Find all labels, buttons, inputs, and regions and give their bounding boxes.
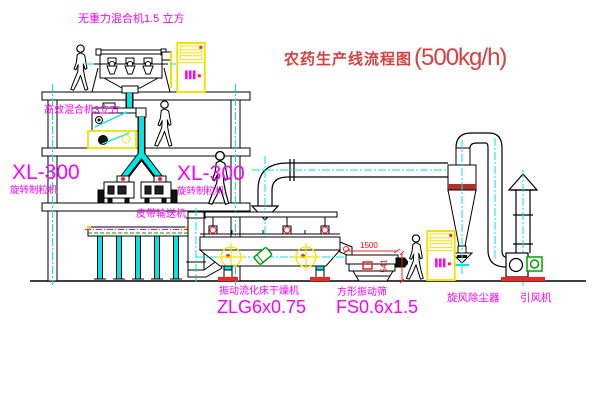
granulator-left-drawing [98, 176, 134, 203]
granulator-right-drawing [141, 176, 177, 203]
worker-figure-floor2 [155, 101, 172, 146]
fan-drawing [501, 253, 545, 281]
title-text: 农药生产线流程图 [284, 48, 412, 69]
label-high-eff-mixer: 高效混合机3立方 [44, 106, 120, 116]
label-gravity-mixer: 无重力混合机1.5 立方 [78, 14, 184, 25]
fluid-bed-dryer-drawing [196, 212, 352, 281]
label-granulator-left-model: XL-300 [12, 162, 80, 183]
control-cabinet-top [177, 43, 204, 92]
label-granulator-left-name: 旋转制粒机 [10, 186, 58, 196]
label-granulator-right-name: 旋转制粒机 [177, 187, 225, 197]
exhaust-duct-drawing [252, 156, 452, 244]
label-belt-conveyor: 皮带输送机 [136, 210, 186, 220]
label-granulator-right-model: XL-300 [177, 163, 245, 184]
control-cabinet-cyclone [427, 231, 454, 280]
vibrating-screen-drawing [344, 249, 408, 283]
belt-conveyor-drawing [85, 226, 191, 279]
worker-figure-roof [71, 45, 88, 90]
label-screen-model: FS0.6x1.5 [336, 298, 418, 316]
label-dryer-model: ZLG6x0.75 [217, 298, 306, 316]
label-dryer-name: 振动流化床干燥机 [219, 287, 299, 297]
dimension-screen-length: 1500 [360, 242, 378, 250]
worker-figure-ground [407, 235, 424, 279]
dimension-screen-height: 541 [381, 259, 389, 272]
title-capacity: (500kg/h) [414, 44, 506, 72]
diagram-title: 农药生产线流程图 (500kg/h) [284, 44, 506, 72]
diagram-canvas: 农药生产线流程图 (500kg/h) 无重力混合机1.5 立方 高效混合机3立方… [0, 0, 600, 403]
label-cyclone: 旋风除尘器 [447, 293, 500, 304]
label-fan: 引风机 [520, 293, 552, 304]
